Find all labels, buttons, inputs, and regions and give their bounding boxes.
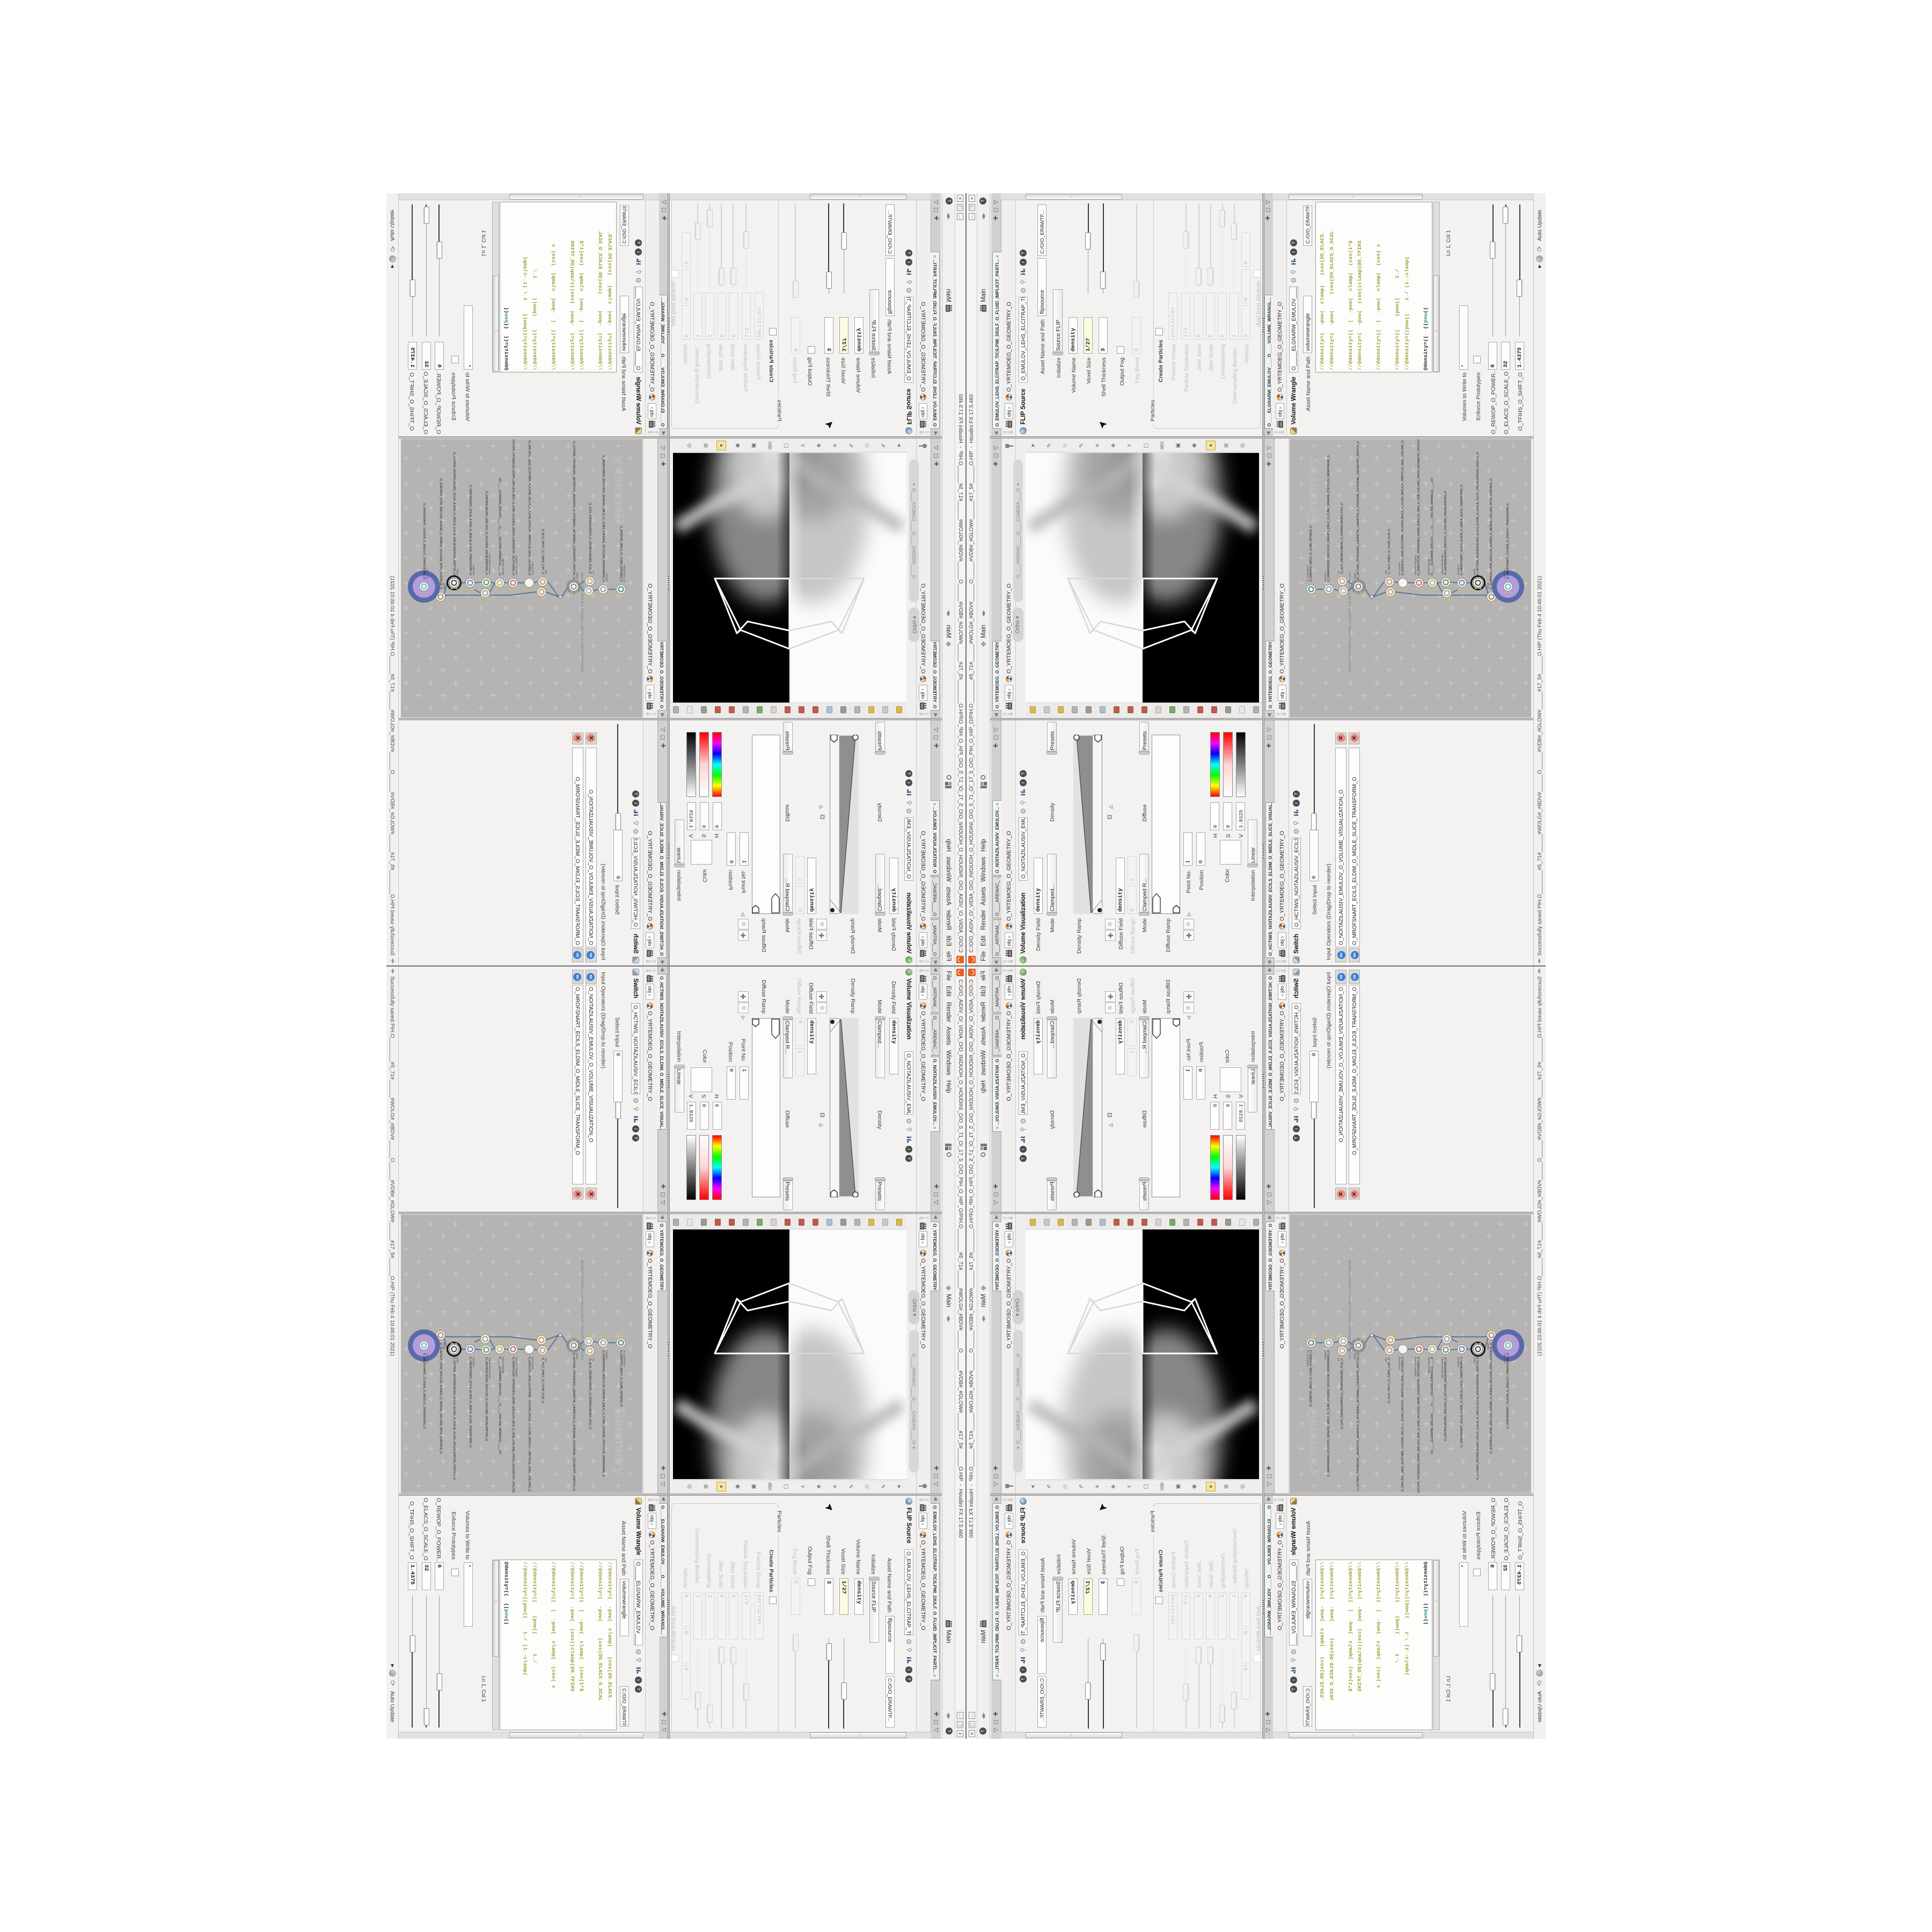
- svg-text:O_EREHPS_EBUC_O_CUBE_SPHERE_O: O_EREHPS_EBUC_O_CUBE_SPHERE_O: [619, 1350, 623, 1407]
- svg-text:O_PILC_PMET_O_TEMP_CLIP_O: O_PILC_PMET_O_TEMP_CLIP_O: [541, 529, 544, 574]
- svg-text:Volume Visualization: Volume Visualization: [1441, 553, 1444, 575]
- svg-text:O_SNOGYLOP_YRTEMOEG_MORF_EMULO: O_SNOGYLOP_YRTEMOEG_MORF_EMULOV_BDV_O_VD…: [511, 439, 515, 575]
- svg-text:O_____ELGNARW_EMULOV_____O____: O_____ELGNARW_EMULOV_____O_____VOLUME_WR…: [498, 1357, 501, 1454]
- svg-text:O_ELIF_DEDAOLNWOD_O_DOWNLOADED: O_ELIF_DEDAOLNWOD_O_DOWNLOADED_FILE_O: [588, 503, 591, 574]
- svg-text:O_HCTIWS_YRTEMOEG_LANRETXE_LAN: O_HCTIWS_YRTEMOEG_LANRETXE_LANRETNI_O_IN…: [572, 1353, 575, 1491]
- svg-text:O_ECAFRUS_HTIW_EMULOV_EGREM_O_: O_ECAFRUS_HTIW_EMULOV_EGREM_O_MERGE_VOLU…: [439, 1343, 442, 1453]
- svg-text:FLIP Source: FLIP Source: [1398, 562, 1401, 575]
- svg-text:FLIP Source: FLIP Source: [531, 562, 534, 575]
- svg-text:Transform: Transform: [1503, 1353, 1506, 1364]
- svg-text:O_HCTIWS_NOITAZILAUSIV_ECILS_E: O_HCTIWS_NOITAZILAUSIV_ECILS_ELDIM_O_MID…: [1476, 452, 1480, 575]
- svg-text:O_MROFSNART_ECILS_ELDIM_O_MIDL: O_MROFSNART_ECILS_ELDIM_O_MIDLE_SLICE_TR…: [469, 1357, 472, 1447]
- svg-text:O_____ELGNARW_EMULOV_____O____: O_____ELGNARW_EMULOV_____O_____VOLUME_WR…: [1431, 478, 1434, 575]
- svg-text:O_SNOGYLOP_YRTEMOEG_MORF_EMULO: O_SNOGYLOP_YRTEMOEG_MORF_EMULOV_BDV_O_VD…: [1417, 1357, 1421, 1493]
- svg-text:O_MROFSNART_TLUSER_O_RESULT_TR: O_MROFSNART_TLUSER_O_RESULT_TRANSFORM_O: [1506, 1353, 1510, 1429]
- svg-text:VDB from Polygons: VDB from Polygons: [515, 1357, 518, 1377]
- svg-text:O_MROFSNART_ECILS_ELDIM_O_MIDL: O_MROFSNART_ECILS_ELDIM_O_MIDLE_SLICE_TR…: [469, 485, 472, 575]
- svg-text:FLIP Source: FLIP Source: [1398, 1357, 1401, 1370]
- svg-text:VDB from Polygons: VDB from Polygons: [1414, 555, 1417, 576]
- svg-text:O_EMULOV_LEHS_ELCITRAP_TICILPM: O_EMULOV_LEHS_ELCITRAP_TICILPMI_DIULF_O_…: [1401, 1357, 1404, 1491]
- svg-text:O_____ELGNARW_EMULOV_____O____: O_____ELGNARW_EMULOV_____O_____VOLUME_WR…: [1431, 1357, 1434, 1454]
- svg-text:Clip: Clip: [545, 1358, 547, 1362]
- svg-text:O_MROFSNART_TLUSER_O_RESULT_TR: O_MROFSNART_TLUSER_O_RESULT_TRANSFORM_O: [422, 503, 426, 579]
- svg-text:Volume Visualization: Volume Visualization: [488, 553, 491, 575]
- svg-text:O_EMARFERIW_NOGYLOP_EREHPS_EBU: O_EMARFERIW_NOGYLOP_EREHPS_EBUC_O_CUBE_S…: [1327, 455, 1330, 582]
- svg-text:Transform: Transform: [1457, 1357, 1460, 1367]
- svg-text:O_ECAFRUS_HTIW_EMULOV_EGREM_O_: O_ECAFRUS_HTIW_EMULOV_EGREM_O_MERGE_VOLU…: [439, 479, 442, 589]
- svg-text:JBO.MD3.PETS.TRPDLS.O_3SUNEG_O: JBO.MD3.PETS.TRPDLS.O_3SUNEG_O_GENUS3_O.…: [580, 1260, 583, 1360]
- svg-text:Merge: Merge: [443, 582, 445, 589]
- svg-text:Switch: Switch: [576, 1353, 579, 1360]
- svg-text:VDB from Polygons: VDB from Polygons: [1414, 1357, 1417, 1377]
- svg-text:Volume Visualization: Volume Visualization: [1441, 1357, 1444, 1379]
- svg-text:Switch: Switch: [1353, 1353, 1356, 1360]
- svg-text:Switch: Switch: [576, 572, 579, 579]
- svg-text:Geometry: Geometry: [1304, 1408, 1320, 1475]
- svg-text:Merge: Merge: [443, 1343, 445, 1350]
- svg-text:JBO.MD3.PETS.TRPDLS.O_3SUNEG_O: JBO.MD3.PETS.TRPDLS.O_3SUNEG_O_GENUS3_O.…: [1349, 572, 1352, 672]
- svg-text:O_HCTIWS_NOITAZILAUSIV_ECILS_E: O_HCTIWS_NOITAZILAUSIV_ECILS_ELDIM_O_MID…: [1476, 1357, 1480, 1480]
- svg-text:O_NOITAZILAUSIV_EMULOV_O_VOLUM: O_NOITAZILAUSIV_EMULOV_O_VOLUME_VISUALIZ…: [1444, 1357, 1447, 1441]
- svg-text:Clip: Clip: [1385, 570, 1387, 574]
- svg-text:Switch: Switch: [456, 568, 459, 575]
- svg-text:Transform: Transform: [1457, 565, 1460, 575]
- svg-text:File: File: [592, 1358, 595, 1363]
- svg-text:Switch: Switch: [1473, 568, 1476, 575]
- svg-text:Clip: Clip: [545, 570, 547, 574]
- svg-text:O_EREHPS_EBUC_O_CUBE_SPHERE_O: O_EREHPS_EBUC_O_CUBE_SPHERE_O: [619, 525, 623, 582]
- svg-text:an_CubeSphere: an_CubeSphere: [1306, 565, 1309, 582]
- svg-text:O_HCTIWS_YRTEMOEG_LANRETXE_LAN: O_HCTIWS_YRTEMOEG_LANRETXE_LANRETNI_O_IN…: [1357, 441, 1360, 579]
- svg-text:O_MROFSNART_ECILS_ELDIM_O_MIDL: O_MROFSNART_ECILS_ELDIM_O_MIDLE_SLICE_TR…: [1460, 485, 1463, 575]
- svg-text:O_MROFSNART_TLUSER_O_RESULT_TR: O_MROFSNART_TLUSER_O_RESULT_TRANSFORM_O: [422, 1353, 426, 1429]
- svg-text:O_____ELGNARW_EMULOV_____O____: O_____ELGNARW_EMULOV_____O_____VOLUME_WR…: [498, 478, 501, 575]
- svg-text:O_PILC_PMET_O_TEMP_CLIP_O: O_PILC_PMET_O_TEMP_CLIP_O: [1388, 529, 1391, 574]
- svg-text:O_EMARFERIW_NOGYLOP_EREHPS_EBU: O_EMARFERIW_NOGYLOP_EREHPS_EBUC_O_CUBE_S…: [602, 1350, 605, 1477]
- svg-text:O_ECAFRUS_HTIW_EMULOV_EGREM_O_: O_ECAFRUS_HTIW_EMULOV_EGREM_O_MERGE_VOLU…: [1490, 479, 1493, 589]
- svg-text:O_HCTIWS_YRTEMOEG_LANRETXE_LAN: O_HCTIWS_YRTEMOEG_LANRETXE_LANRETNI_O_IN…: [572, 441, 575, 579]
- svg-text:O_MROFSNART_ECILS_ELDIM_O_MIDL: O_MROFSNART_ECILS_ELDIM_O_MIDLE_SLICE_TR…: [1460, 1357, 1463, 1447]
- svg-text:JBO.MD3.PETS.TRPDLS.O_3SUNEG_O: JBO.MD3.PETS.TRPDLS.O_3SUNEG_O_GENUS3_O.…: [1349, 1260, 1352, 1360]
- svg-text:PolyWire: PolyWire: [1324, 1350, 1327, 1360]
- svg-text:Merge: Merge: [1487, 1343, 1489, 1350]
- svg-text:O_EMARFERIW_NOGYLOP_EREHPS_EBU: O_EMARFERIW_NOGYLOP_EREHPS_EBUC_O_CUBE_S…: [602, 455, 605, 582]
- svg-text:PolyWire: PolyWire: [605, 1350, 608, 1360]
- svg-text:O_ELIF_DEDAOLNWOD_O_DOWNLOADED: O_ELIF_DEDAOLNWOD_O_DOWNLOADED_FILE_O: [588, 1358, 591, 1429]
- svg-text:Geometry: Geometry: [612, 457, 628, 524]
- svg-text:JBO.MD3.PETS.TRPDLS.O_3SUNEG_O: JBO.MD3.PETS.TRPDLS.O_3SUNEG_O_GENUS3_O.…: [580, 572, 583, 672]
- svg-text:File: File: [1337, 1358, 1340, 1363]
- svg-text:Volume Wrangle: Volume Wrangle: [502, 1357, 504, 1374]
- svg-text:Volume Wrangle: Volume Wrangle: [502, 558, 504, 575]
- svg-text:Clip: Clip: [1385, 1358, 1387, 1362]
- svg-text:PolyWire: PolyWire: [605, 572, 608, 582]
- svg-text:O_HCTIWS_NOITAZILAUSIV_ECILS_E: O_HCTIWS_NOITAZILAUSIV_ECILS_ELDIM_O_MID…: [452, 452, 456, 575]
- svg-text:Volume Wrangle: Volume Wrangle: [1428, 1357, 1430, 1374]
- svg-text:Switch: Switch: [456, 1357, 459, 1364]
- svg-text:Switch: Switch: [1353, 572, 1356, 579]
- svg-text:O_EMARFERIW_NOGYLOP_EREHPS_EBU: O_EMARFERIW_NOGYLOP_EREHPS_EBUC_O_CUBE_S…: [1327, 1350, 1330, 1477]
- svg-text:O_NOITAZILAUSIV_EMULOV_O_VOLUM: O_NOITAZILAUSIV_EMULOV_O_VOLUME_VISUALIZ…: [485, 1357, 488, 1441]
- svg-text:Geometry: Geometry: [1304, 457, 1320, 524]
- svg-text:O_SNOGYLOP_YRTEMOEG_MORF_EMULO: O_SNOGYLOP_YRTEMOEG_MORF_EMULOV_BDV_O_VD…: [1417, 439, 1421, 575]
- svg-text:File: File: [592, 569, 595, 574]
- svg-text:O_HCTIWS_YRTEMOEG_LANRETXE_LAN: O_HCTIWS_YRTEMOEG_LANRETXE_LANRETNI_O_IN…: [1357, 1353, 1360, 1491]
- svg-text:Transform: Transform: [472, 565, 475, 575]
- svg-text:Volume Visualization: Volume Visualization: [488, 1357, 491, 1379]
- svg-text:PolyWire: PolyWire: [1324, 572, 1327, 582]
- svg-text:Transform: Transform: [426, 1353, 429, 1364]
- svg-text:O_MROFSNART_TLUSER_O_RESULT_TR: O_MROFSNART_TLUSER_O_RESULT_TRANSFORM_O: [1506, 503, 1510, 579]
- svg-text:O_EMULOV_LEHS_ELCITRAP_TICILPM: O_EMULOV_LEHS_ELCITRAP_TICILPMI_DIULF_O_…: [528, 441, 531, 575]
- svg-text:Geometry: Geometry: [612, 1408, 628, 1475]
- svg-text:Transform: Transform: [472, 1357, 475, 1367]
- svg-text:O_EMULOV_LEHS_ELCITRAP_TICILPM: O_EMULOV_LEHS_ELCITRAP_TICILPMI_DIULF_O_…: [1401, 441, 1404, 575]
- svg-text:Transform: Transform: [1503, 568, 1506, 579]
- svg-text:O_PILC_PMET_O_TEMP_CLIP_O: O_PILC_PMET_O_TEMP_CLIP_O: [1388, 1358, 1391, 1403]
- svg-text:VDB from Polygons: VDB from Polygons: [515, 555, 518, 576]
- svg-text:O_ECAFRUS_HTIW_EMULOV_EGREM_O_: O_ECAFRUS_HTIW_EMULOV_EGREM_O_MERGE_VOLU…: [1490, 1343, 1493, 1453]
- svg-text:O_PILC_PMET_O_TEMP_CLIP_O: O_PILC_PMET_O_TEMP_CLIP_O: [541, 1358, 544, 1403]
- svg-text:O_ELIF_DEDAOLNWOD_O_DOWNLOADED: O_ELIF_DEDAOLNWOD_O_DOWNLOADED_FILE_O: [1341, 503, 1344, 574]
- svg-text:O_EREHPS_EBUC_O_CUBE_SPHERE_O: O_EREHPS_EBUC_O_CUBE_SPHERE_O: [1309, 525, 1313, 582]
- svg-text:O_HCTIWS_NOITAZILAUSIV_ECILS_E: O_HCTIWS_NOITAZILAUSIV_ECILS_ELDIM_O_MID…: [452, 1357, 456, 1480]
- svg-text:Volume Wrangle: Volume Wrangle: [1428, 558, 1430, 575]
- svg-text:Merge: Merge: [1487, 582, 1489, 589]
- svg-text:FLIP Source: FLIP Source: [531, 1357, 534, 1370]
- svg-text:Switch: Switch: [1473, 1357, 1476, 1364]
- svg-text:an_CubeSphere: an_CubeSphere: [1306, 1350, 1309, 1367]
- svg-text:an_CubeSphere: an_CubeSphere: [623, 1350, 626, 1367]
- svg-text:Transform: Transform: [426, 568, 429, 579]
- svg-text:O_NOITAZILAUSIV_EMULOV_O_VOLUM: O_NOITAZILAUSIV_EMULOV_O_VOLUME_VISUALIZ…: [485, 491, 488, 575]
- svg-text:File: File: [1337, 569, 1340, 574]
- svg-text:an_CubeSphere: an_CubeSphere: [623, 565, 626, 582]
- svg-text:O_EREHPS_EBUC_O_CUBE_SPHERE_O: O_EREHPS_EBUC_O_CUBE_SPHERE_O: [1309, 1350, 1313, 1407]
- svg-text:O_NOITAZILAUSIV_EMULOV_O_VOLUM: O_NOITAZILAUSIV_EMULOV_O_VOLUME_VISUALIZ…: [1444, 491, 1447, 575]
- svg-text:O_SNOGYLOP_YRTEMOEG_MORF_EMULO: O_SNOGYLOP_YRTEMOEG_MORF_EMULOV_BDV_O_VD…: [511, 1357, 515, 1493]
- svg-text:O_ELIF_DEDAOLNWOD_O_DOWNLOADED: O_ELIF_DEDAOLNWOD_O_DOWNLOADED_FILE_O: [1341, 1358, 1344, 1429]
- svg-text:O_EMULOV_LEHS_ELCITRAP_TICILPM: O_EMULOV_LEHS_ELCITRAP_TICILPMI_DIULF_O_…: [528, 1357, 531, 1491]
